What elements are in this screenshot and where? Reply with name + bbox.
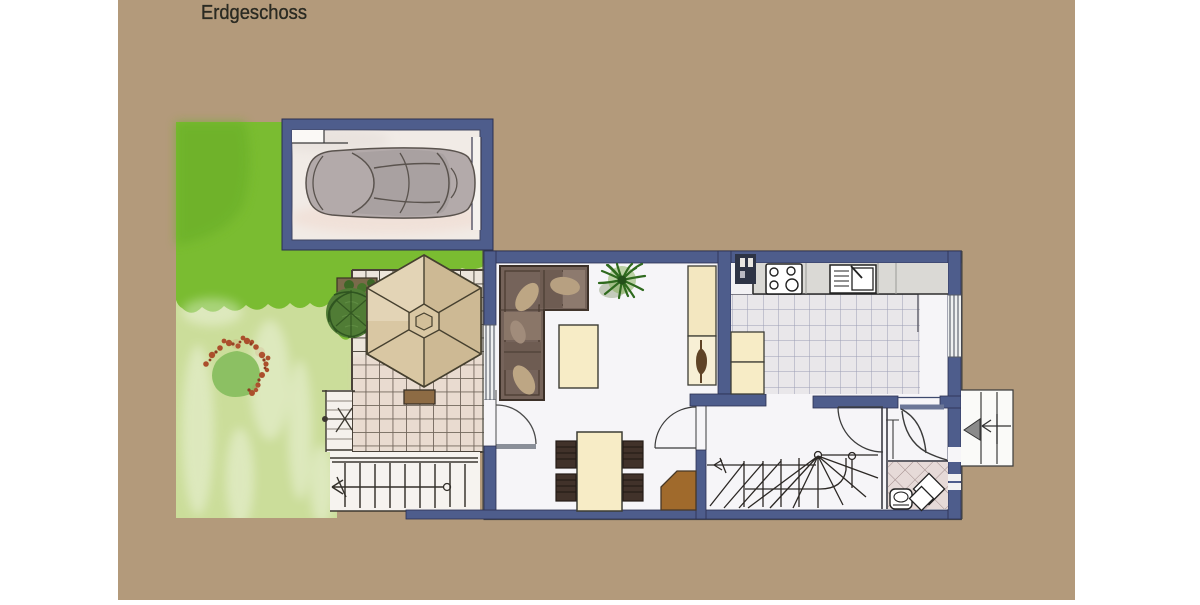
svg-text:Erdgeschoss: Erdgeschoss bbox=[201, 2, 307, 24]
